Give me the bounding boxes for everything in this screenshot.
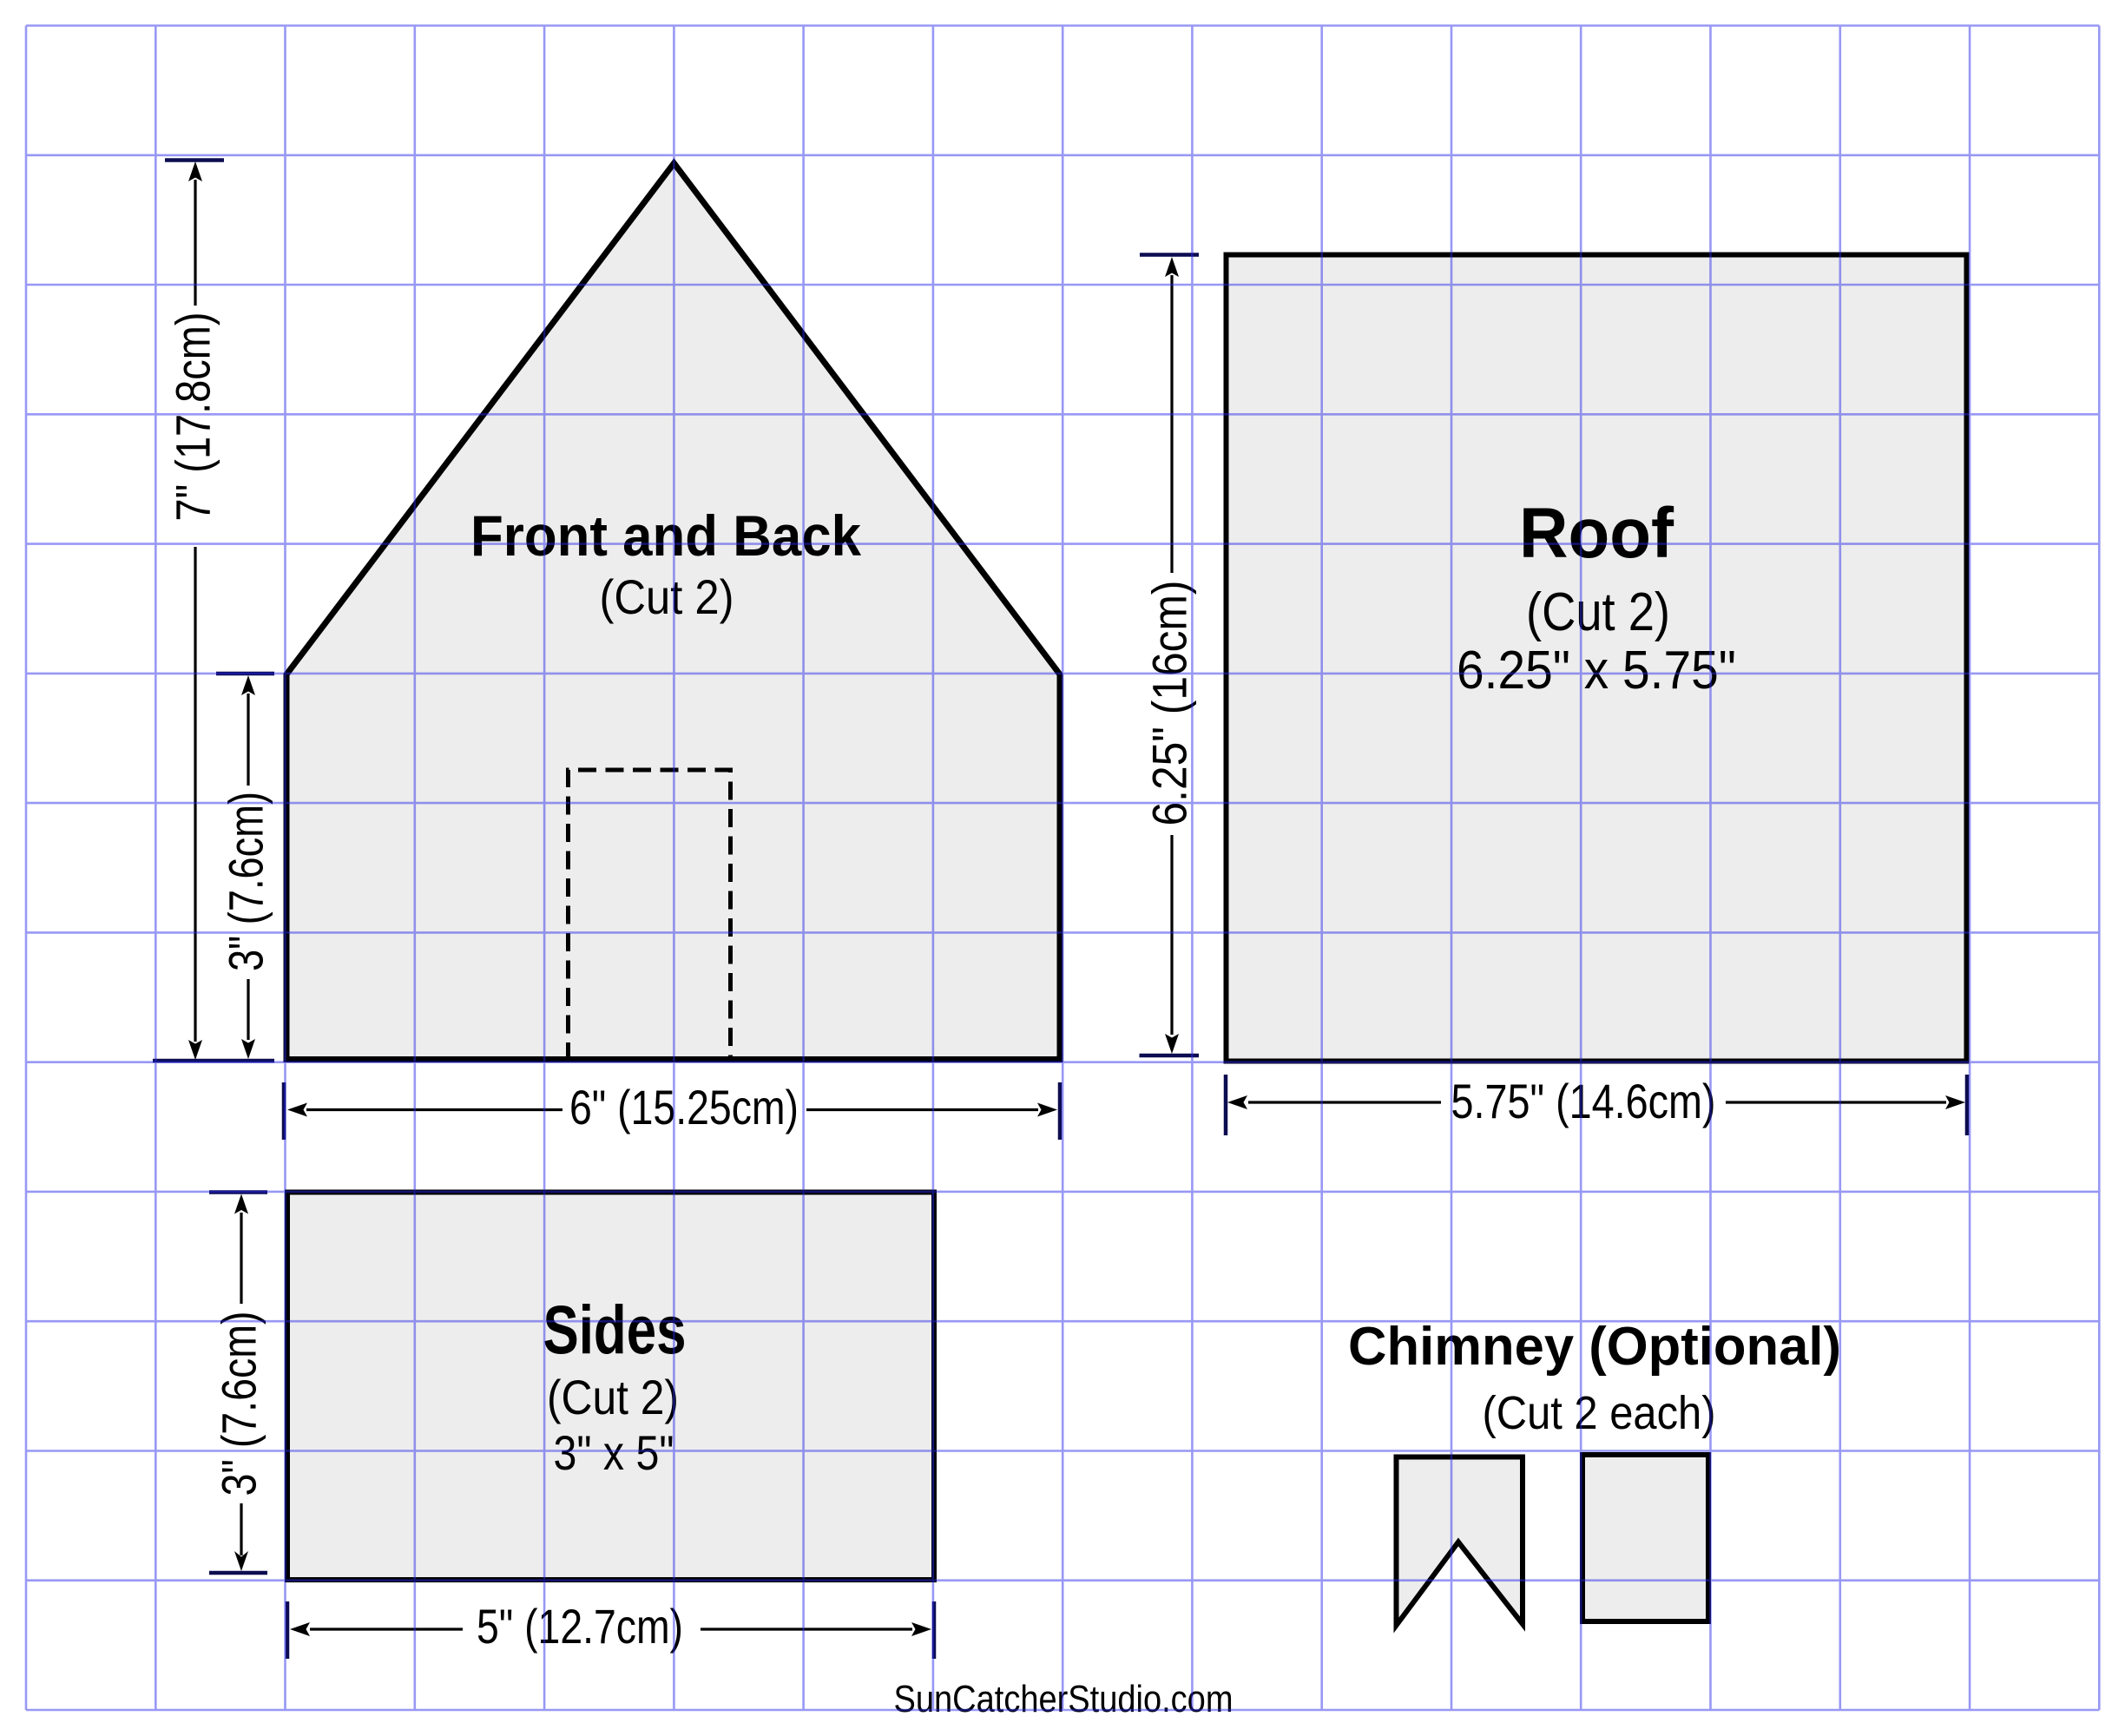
svg-text:5" (12.7cm): 5" (12.7cm) [477,1599,683,1654]
svg-text:(Cut 2): (Cut 2) [600,569,734,624]
svg-text:Sides: Sides [543,1291,687,1368]
svg-text:Roof: Roof [1519,494,1674,573]
svg-text:3" x 5": 3" x 5" [554,1425,674,1480]
svg-text:5.75" (14.6cm): 5.75" (14.6cm) [1451,1074,1716,1128]
svg-text:3" (7.6cm): 3" (7.6cm) [212,1312,266,1496]
svg-text:(Cut 2 each): (Cut 2 each) [1483,1387,1716,1439]
svg-text:3" (7.6cm): 3" (7.6cm) [219,792,273,971]
svg-text:6.25" x 5.75": 6.25" x 5.75" [1457,641,1736,700]
svg-text:7" (17.8cm): 7" (17.8cm) [166,312,220,522]
svg-text:(Cut 2): (Cut 2) [547,1370,679,1424]
svg-text:(Cut 2): (Cut 2) [1526,582,1670,642]
svg-text:6" (15.25cm): 6" (15.25cm) [569,1080,799,1134]
svg-text:Chimney (Optional): Chimney (Optional) [1348,1317,1841,1377]
svg-text:6.25" (16cm): 6.25" (16cm) [1142,581,1197,826]
